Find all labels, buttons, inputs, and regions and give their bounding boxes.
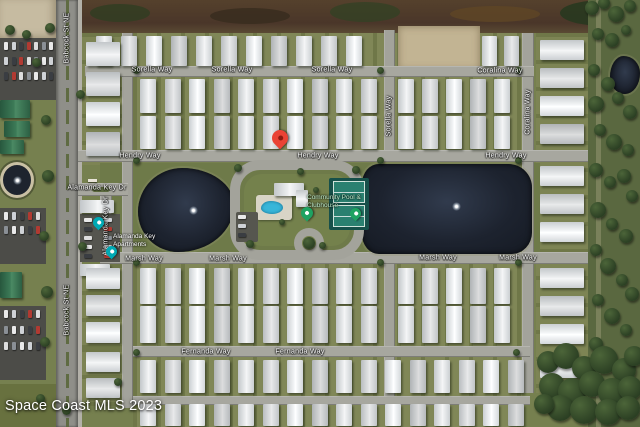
parked-car: [49, 42, 53, 50]
tree: [297, 168, 304, 175]
street-label: Hendry Way: [297, 153, 338, 160]
house-roof: [494, 79, 510, 113]
parked-car: [42, 42, 46, 50]
tree: [319, 242, 326, 249]
house-roof: [494, 306, 510, 343]
street-label: Marsh Way: [499, 255, 537, 262]
house-roof: [540, 194, 584, 214]
parked-car: [12, 57, 16, 65]
parked-car: [49, 57, 53, 65]
main-road-median: [66, 0, 69, 427]
street-label: Fernanda Way: [275, 349, 324, 356]
tree: [313, 187, 319, 193]
tree: [616, 274, 628, 286]
parked-car: [19, 42, 23, 50]
tree: [42, 170, 54, 182]
construction-dirt-lot: [398, 26, 480, 70]
tree: [78, 242, 87, 251]
green-roof-small: [0, 272, 22, 298]
parked-car: [27, 42, 31, 50]
house-roof: [287, 268, 303, 304]
house-roof: [86, 72, 120, 96]
tree: [589, 163, 603, 177]
house-roof: [296, 36, 312, 66]
poi-label-line: Alamanda Key: [113, 233, 155, 241]
street-label: Sorella Way: [132, 67, 173, 74]
house-roof: [361, 268, 377, 304]
scrub-vegetation: [450, 6, 540, 22]
tree: [604, 176, 616, 188]
parked-car: [84, 254, 92, 258]
house-roof: [189, 116, 205, 149]
parked-car: [20, 226, 24, 234]
house-roof: [361, 79, 377, 113]
house-roof: [287, 360, 303, 393]
parked-car: [34, 42, 38, 50]
house-roof: [189, 268, 205, 304]
tree: [623, 105, 637, 119]
tree: [534, 394, 554, 414]
house-roof: [398, 79, 414, 113]
house-roof: [361, 306, 377, 343]
house-roof: [287, 306, 303, 343]
tree: [616, 396, 640, 420]
house-roof: [189, 79, 205, 113]
tree: [513, 349, 520, 356]
house-roof: [494, 268, 510, 304]
tree: [592, 28, 604, 40]
tree: [39, 231, 49, 241]
house-roof: [214, 306, 230, 343]
house-roof: [336, 116, 352, 149]
tree: [45, 23, 55, 33]
parked-car: [20, 342, 24, 350]
tree: [592, 294, 604, 306]
house-roof: [422, 306, 438, 343]
house-roof: [470, 306, 486, 343]
parked-car: [4, 326, 8, 334]
tree: [570, 396, 598, 424]
tree: [606, 218, 618, 230]
house-roof: [540, 68, 584, 88]
house-roof: [540, 222, 584, 242]
street-label: Sorella Way: [386, 96, 393, 137]
house-roof: [238, 79, 254, 113]
house-roof: [271, 36, 287, 66]
parked-car: [20, 326, 24, 334]
house-roof: [540, 40, 584, 60]
house-roof: [140, 79, 156, 113]
tree: [606, 134, 622, 150]
street-label: Coralina Way: [525, 89, 532, 134]
house-roof: [189, 404, 205, 426]
parked-car: [36, 212, 40, 220]
house-roof: [361, 404, 377, 426]
house-roof: [165, 268, 181, 304]
house-roof: [287, 79, 303, 113]
parked-car: [28, 342, 32, 350]
house-roof: [86, 295, 120, 316]
house-roof: [508, 404, 524, 426]
house-roof: [336, 404, 352, 426]
house-roof: [312, 79, 328, 113]
parked-car: [12, 326, 16, 334]
parked-car: [28, 226, 32, 234]
house-roof: [165, 404, 181, 426]
house-roof: [246, 36, 262, 66]
lake-west-fountain: [189, 206, 198, 215]
tree: [234, 164, 242, 172]
house-roof: [86, 352, 120, 372]
tree: [624, 346, 640, 366]
house-roof: [361, 116, 377, 149]
street-label: Hendry Way: [119, 153, 160, 160]
house-roof: [287, 116, 303, 149]
parked-car: [4, 226, 8, 234]
tree: [133, 349, 140, 356]
tree: [377, 259, 384, 266]
tree: [626, 190, 638, 202]
tree: [625, 287, 639, 301]
plaza-fountain-jet: [13, 176, 22, 185]
house-roof: [214, 404, 230, 426]
satellite-map[interactable]: Sorella WaySorella WaySorella WayCoralin…: [0, 0, 640, 427]
house-roof: [540, 124, 584, 144]
parked-car: [12, 342, 16, 350]
house-roof: [263, 306, 279, 343]
house-roof: [140, 306, 156, 343]
tree: [377, 67, 384, 74]
street-label: Marsh Way: [419, 255, 457, 262]
house-roof: [361, 360, 377, 393]
house-roof: [336, 268, 352, 304]
house-roof: [221, 36, 237, 66]
house-roof: [312, 404, 328, 426]
house-roof: [214, 116, 230, 149]
street-label: Fernanda Way: [181, 349, 230, 356]
house-roof: [459, 404, 475, 426]
house-roof: [238, 116, 254, 149]
house-roof: [321, 36, 337, 66]
parked-car: [4, 42, 8, 50]
house-roof: [410, 360, 426, 393]
house-roof: [263, 404, 279, 426]
parked-car: [84, 218, 92, 222]
house-roof: [504, 36, 519, 66]
house-roof: [336, 306, 352, 343]
parked-car: [20, 310, 24, 318]
parked-car: [84, 236, 92, 240]
tree: [608, 6, 624, 22]
parked-car: [84, 227, 92, 231]
house-roof: [238, 306, 254, 343]
house-roof: [86, 268, 120, 289]
house-roof: [140, 360, 156, 393]
house-roof: [263, 268, 279, 304]
tree: [246, 240, 254, 248]
tree: [619, 229, 633, 243]
house-roof: [346, 36, 362, 66]
house-roof: [410, 404, 426, 426]
house-roof: [312, 116, 328, 149]
house-roof: [312, 360, 328, 393]
house-roof: [171, 36, 187, 66]
house-roof: [385, 360, 401, 393]
house-roof: [446, 79, 462, 113]
parked-car: [20, 212, 24, 220]
house-roof: [398, 306, 414, 343]
parked-car: [27, 72, 31, 80]
house-roof: [540, 96, 584, 116]
parked-car: [12, 72, 16, 80]
tree: [601, 77, 615, 91]
clubhouse-green-roof-1: [0, 100, 30, 118]
house-roof: [86, 102, 120, 126]
house-roof: [470, 268, 486, 304]
parked-car: [238, 224, 246, 228]
house-roof: [446, 306, 462, 343]
house-roof: [287, 404, 303, 426]
street-label: Marsh Way: [209, 256, 247, 263]
tree: [114, 378, 122, 386]
house-roof: [398, 116, 414, 149]
parked-car: [28, 326, 32, 334]
house-roof: [238, 360, 254, 393]
house-roof: [140, 116, 156, 149]
tree: [622, 144, 634, 156]
tree: [621, 25, 631, 35]
house-roof: [482, 36, 497, 66]
parked-car: [36, 310, 40, 318]
house-roof: [214, 360, 230, 393]
house-roof: [422, 268, 438, 304]
street-left-internal: [122, 33, 133, 408]
parked-car: [238, 215, 246, 219]
tree: [620, 324, 632, 336]
street-label: Marsh Way: [125, 256, 163, 263]
house-roof: [398, 268, 414, 304]
tree: [40, 337, 50, 347]
parked-car: [4, 72, 8, 80]
house-roof: [165, 116, 181, 149]
parked-car: [42, 72, 46, 80]
house-roof: [540, 324, 584, 344]
house-roof: [422, 79, 438, 113]
parked-car: [28, 310, 32, 318]
house-roof: [385, 404, 401, 426]
tree: [32, 58, 41, 67]
house-roof: [214, 268, 230, 304]
tree: [585, 1, 599, 15]
parked-car: [19, 72, 23, 80]
lake-east-fountain: [452, 202, 461, 211]
tree: [41, 115, 51, 125]
parked-car: [12, 42, 16, 50]
house-roof: [165, 360, 181, 393]
poi-label[interactable]: Community Pool &Clubhouse: [307, 194, 361, 209]
house-roof: [189, 306, 205, 343]
parked-car: [34, 72, 38, 80]
poi-label-line: Apartments: [113, 241, 155, 249]
house-roof: [422, 116, 438, 149]
tree: [352, 166, 360, 174]
parked-car: [12, 226, 16, 234]
street-label: Babcock St NE: [64, 13, 71, 64]
house-roof: [312, 306, 328, 343]
tree: [590, 202, 606, 218]
house-roof: [196, 36, 212, 66]
house-roof: [312, 268, 328, 304]
clubhouse-green-roof-3: [0, 140, 24, 154]
house-roof: [238, 268, 254, 304]
lake-east: [362, 164, 532, 254]
parked-car: [4, 342, 8, 350]
parked-car: [42, 57, 46, 65]
house-roof: [238, 404, 254, 426]
tree: [588, 96, 604, 112]
tree: [377, 157, 384, 164]
tree: [624, 0, 636, 12]
scrub-vegetation: [210, 8, 290, 24]
house-roof: [189, 360, 205, 393]
parked-car: [4, 212, 8, 220]
tree: [5, 25, 15, 35]
house-roof: [86, 322, 120, 343]
house-roof: [86, 132, 120, 156]
tree: [594, 124, 606, 136]
street-label: Alamanda Key Dr: [67, 185, 126, 192]
tree: [600, 258, 616, 274]
house-roof: [336, 360, 352, 393]
tree: [41, 286, 53, 298]
parked-car: [19, 57, 23, 65]
house-roof: [540, 166, 584, 186]
house-roof: [540, 268, 584, 288]
tree: [279, 219, 285, 225]
house-roof: [165, 306, 181, 343]
house-roof: [434, 360, 450, 393]
entrance-sign: [88, 179, 97, 182]
house-roof: [470, 79, 486, 113]
parked-car: [49, 72, 53, 80]
parked-car: [4, 57, 8, 65]
house-roof: [470, 116, 486, 149]
parked-car: [27, 57, 31, 65]
parked-car: [12, 212, 16, 220]
parked-car: [238, 233, 246, 237]
poi-label-line: Community Pool &: [307, 194, 361, 202]
house-roof: [459, 360, 475, 393]
mls-watermark: Space Coast MLS 2023: [5, 398, 162, 414]
tree: [76, 90, 85, 99]
house-roof: [165, 79, 181, 113]
house-roof: [434, 404, 450, 426]
poi-label[interactable]: Alamanda KeyApartments: [113, 233, 155, 248]
clubhouse-green-roof-2: [4, 121, 30, 137]
house-roof: [263, 360, 279, 393]
house-roof: [483, 360, 499, 393]
house-roof: [540, 296, 584, 316]
house-roof: [86, 42, 120, 66]
parked-car: [28, 212, 32, 220]
street-label: Hendry Way: [485, 153, 526, 160]
house-roof: [508, 360, 524, 393]
tree: [604, 308, 620, 324]
street-label: Sorella Way: [212, 67, 253, 74]
house-roof: [140, 268, 156, 304]
scrub-vegetation: [330, 2, 400, 22]
house-roof: [494, 116, 510, 149]
house-roof: [446, 268, 462, 304]
street-label: Coralina Way: [477, 68, 522, 75]
house-roof: [121, 36, 137, 66]
tree: [617, 169, 631, 183]
tree: [588, 64, 600, 76]
house-roof: [483, 404, 499, 426]
house-roof: [446, 116, 462, 149]
scrub-vegetation: [90, 4, 150, 22]
tree: [605, 33, 619, 47]
street-label: Babcock St NE: [64, 285, 71, 336]
house-roof: [214, 79, 230, 113]
house-roof: [263, 79, 279, 113]
parked-car: [36, 326, 40, 334]
swimming-pool[interactable]: [261, 201, 283, 214]
parked-car: [4, 310, 8, 318]
tree: [590, 244, 602, 256]
tree: [612, 92, 624, 104]
tree: [22, 30, 31, 39]
street-label: Sorella Way: [312, 67, 353, 74]
house-roof: [336, 79, 352, 113]
parked-car: [12, 310, 16, 318]
roundabout-tree: [303, 237, 315, 249]
house-roof: [146, 36, 162, 66]
